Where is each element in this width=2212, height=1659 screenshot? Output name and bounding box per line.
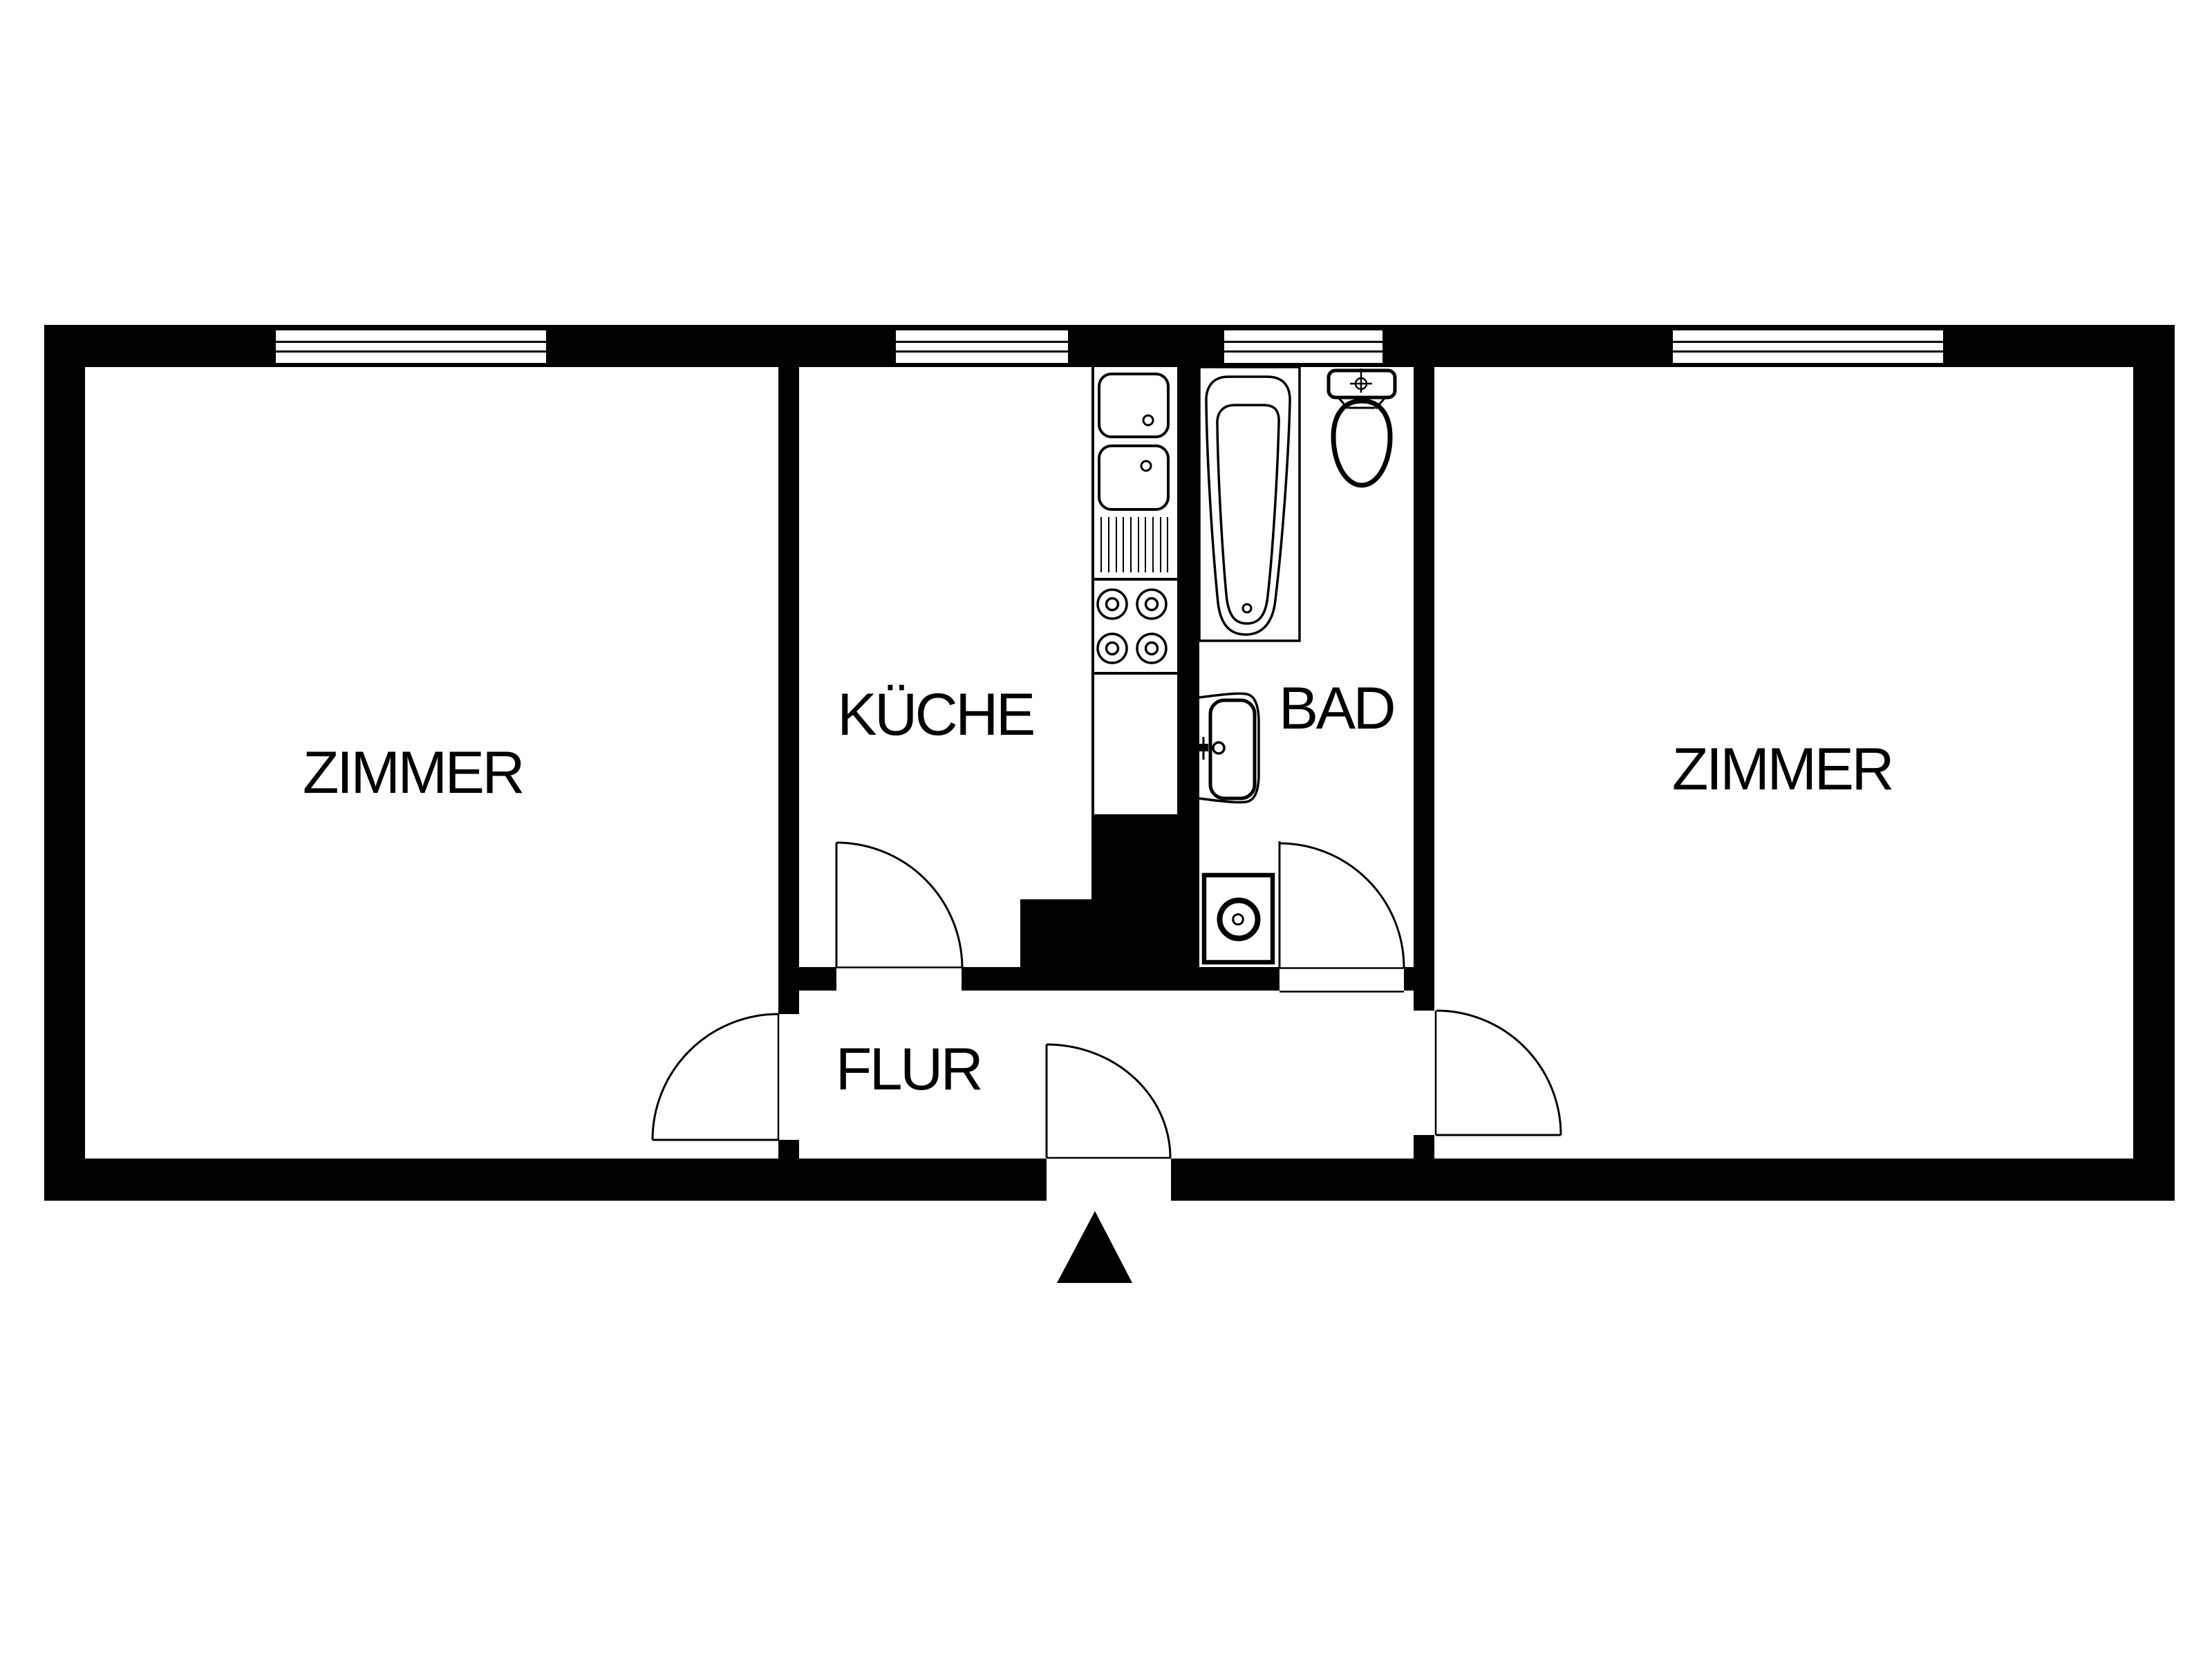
svg-text:BAD: BAD: [1279, 675, 1394, 742]
svg-text:KÜCHE: KÜCHE: [837, 682, 1033, 748]
svg-text:ZIMMER: ZIMMER: [303, 740, 523, 806]
svg-text:FLUR: FLUR: [836, 1036, 982, 1103]
svg-text:ZIMMER: ZIMMER: [1672, 736, 1893, 803]
